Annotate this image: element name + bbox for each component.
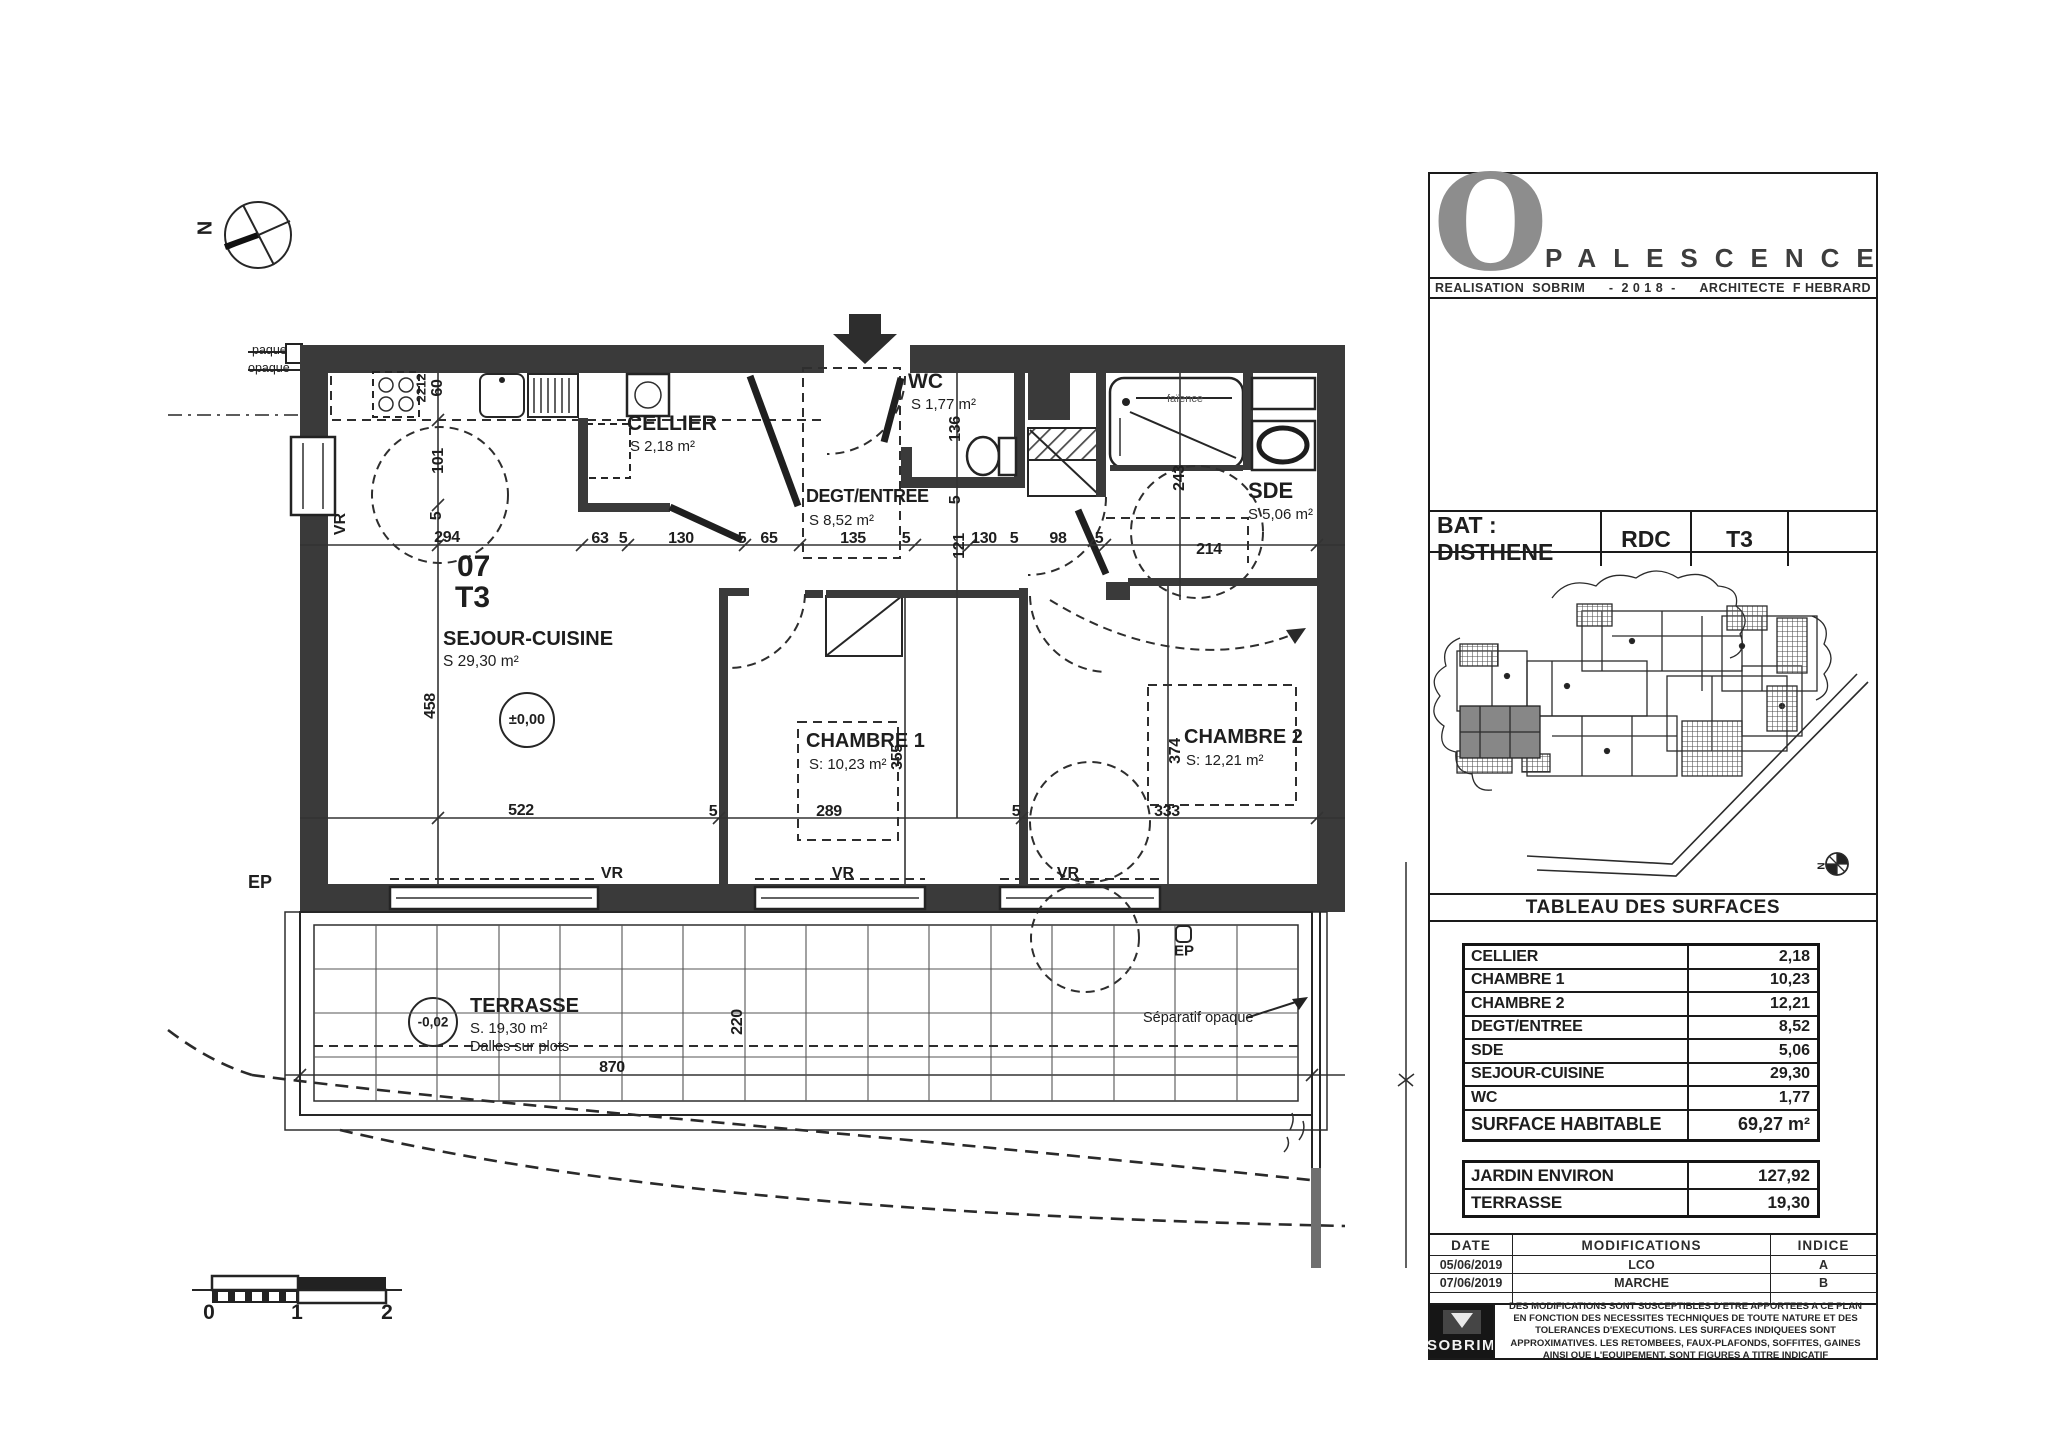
revisions-header-date: DATE [1430,1235,1512,1255]
site-north-label: N [1817,862,1828,869]
scale-1: 1 [291,1301,303,1325]
table-row: TERRASSE 19,30 [1465,1188,1817,1215]
north-label: N [195,221,218,235]
unit-number-label: 07 [457,550,490,584]
entrance-arrow-icon [833,314,897,364]
dim-label: 130 [971,530,997,548]
exterior-room: JARDIN ENVIRON [1465,1163,1687,1188]
dim-label: 5 [1012,803,1021,821]
building-info-row: BAT : DISTHENE RDC T3 [1428,510,1878,553]
room-area-cellier: S 2,18 m² [630,438,695,455]
dim-label: 220 [729,1009,747,1035]
table-row: SDE 5,06 [1465,1038,1817,1062]
surface-room: SDE [1465,1040,1687,1062]
room-area-chambre1: S: 10,23 m² [809,756,887,773]
scanned-floor-plan-page: N paque opaque 07 T3 SEJOUR-CUISINE S 29… [0,0,2048,1448]
revision-date: 05/06/2019 [1430,1255,1512,1273]
dim-label: 458 [422,693,440,719]
revision-indice: A [1770,1255,1876,1273]
dim-label: 374 [1167,738,1185,764]
room-area-chambre2: S: 12,21 m² [1186,752,1264,769]
dim-label: 333 [1154,803,1180,821]
credit-realisation: REALISATION SOBRIM [1435,281,1585,295]
dim-label: 522 [508,802,534,820]
separatif-label: Séparatif opaque [1143,1010,1253,1026]
surface-value: 1,77 [1687,1087,1817,1109]
room-area-terrasse: S. 19,30 m² [470,1020,548,1037]
terrasse-note: Dalles sur plots [470,1039,569,1055]
room-label-chambre1: CHAMBRE 1 [806,730,925,753]
table-row: DEGT/ENTREE 8,52 [1465,1015,1817,1039]
dim-label: 135 [840,530,866,548]
surface-room: CHAMBRE 1 [1465,970,1687,992]
credit-year: - 2 0 1 8 - [1609,281,1676,295]
sobrim-logo: SOBRIM [1430,1305,1493,1358]
window-label-vr: VR [332,513,350,535]
exterior-room: TERRASSE [1465,1190,1687,1215]
room-label-degt: DEGT/ENTREE [806,486,929,507]
dim-label: 5 [428,512,446,521]
room-area-degt: S 8,52 m² [809,512,874,529]
kitchen-fixtures [331,372,822,478]
revisions-table: DATE MODIFICATIONS INDICE 05/06/2019 LCO… [1428,1233,1878,1305]
surface-value: 5,06 [1687,1040,1817,1062]
surface-value: 29,30 [1687,1064,1817,1086]
room-label-cellier: CELLIER [627,412,717,436]
revision-date [1430,1292,1512,1303]
table-row: CHAMBRE 1 10,23 [1465,968,1817,992]
room-label-wc: WC [908,370,943,394]
dim-label: 289 [816,803,842,821]
sobrim-logo-text: SOBRIM [1427,1337,1496,1354]
credits-band: REALISATION SOBRIM - 2 0 1 8 - ARCHITECT… [1428,277,1878,299]
floor-plan-drawing [0,0,1430,1448]
table-row: JARDIN ENVIRON 127,92 [1465,1163,1817,1188]
table-row: WC 1,77 [1465,1085,1817,1109]
exterior-value: 127,92 [1687,1163,1817,1188]
property-boundaries [168,1030,1345,1226]
revisions-header-indice: INDICE [1770,1235,1876,1255]
surface-value: 12,21 [1687,993,1817,1015]
surfaces-table: CELLIER 2,18 CHAMBRE 1 10,23 CHAMBRE 2 1… [1462,943,1820,1142]
exterior-surfaces-table: JARDIN ENVIRON 127,92 TERRASSE 19,30 [1462,1160,1820,1218]
table-row: CHAMBRE 2 12,21 [1465,991,1817,1015]
credit-architecte: ARCHITECTE F HEBRARD [1699,281,1871,295]
level-terrace-label: -0,02 [418,1015,449,1030]
surface-room: CHAMBRE 2 [1465,993,1687,1015]
site-plan-drawing [1432,556,1876,890]
separator-clip-label: paque [252,343,287,357]
room-area-wc: S 1,77 m² [911,396,976,413]
scale-2: 2 [381,1301,393,1325]
north-compass-icon [225,202,291,268]
dim-label: 65 [760,530,777,548]
dim-label: 294 [434,529,460,547]
surface-room: SEJOUR-CUISINE [1465,1064,1687,1086]
ep-label: EP [248,872,272,893]
room-label-sejour: SEJOUR-CUISINE [443,628,613,651]
disclaimer-text: DES MODIFICATIONS SONT SUSCEPTIBLES D'ET… [1493,1305,1876,1358]
dim-label: 5 [738,530,747,548]
dim-label: 63 [591,530,608,548]
site-compass-icon [1826,853,1848,875]
room-label-chambre2: CHAMBRE 2 [1184,726,1303,749]
table-row: CELLIER 2,18 [1465,946,1817,968]
dim-label: 98 [1049,530,1066,548]
revision-modification: MARCHE [1512,1273,1770,1292]
dim-label: 5 [1095,530,1104,548]
scale-bar [192,1276,402,1303]
room-label-terrasse: TERRASSE [470,995,579,1018]
room-label-sde: SDE [1248,478,1293,504]
title-block-footer: SOBRIM DES MODIFICATIONS SONT SUSCEPTIBL… [1428,1303,1878,1360]
ep-label: EP [1174,943,1194,960]
revision-date: 07/06/2019 [1430,1273,1512,1292]
dim-label: 121 [951,533,969,559]
surface-value: 8,52 [1687,1017,1817,1039]
dim-label: 136 [947,416,965,442]
window-label-vr: VR [832,865,854,883]
scale-0: 0 [203,1301,215,1325]
surface-total-row: SURFACE HABITABLE 69,27 m² [1465,1109,1817,1139]
dim-label: 243 [1171,465,1189,491]
surface-value: 2,18 [1687,946,1817,968]
dim-label: 214 [1196,541,1222,559]
revision-indice: B [1770,1273,1876,1292]
dim-label: 101 [430,448,448,474]
dim-label: 2212 [414,374,429,403]
surface-value: 10,23 [1687,970,1817,992]
window-left [291,437,335,515]
window-label-vr: VR [1057,865,1079,883]
dim-label: 5 [1010,530,1019,548]
ep-symbol [1176,926,1191,942]
level-interior-label: ±0,00 [509,712,545,728]
sobrim-emblem-icon [1443,1310,1481,1334]
dim-label: 5 [902,530,911,548]
dim-label: 5 [709,803,718,821]
dim-label: 5 [947,496,965,505]
exterior-value: 19,30 [1687,1190,1817,1215]
room-area-sde: S 5,06 m² [1248,506,1313,523]
faience-label: faïence [1167,393,1203,405]
surfaces-table-title: TABLEAU DES SURFACES [1428,893,1878,922]
dim-label: 130 [668,530,694,548]
duct-shaft [1028,373,1106,497]
revisions-header-modifications: MODIFICATIONS [1512,1235,1770,1255]
surface-total-value: 69,27 m² [1687,1111,1817,1139]
dim-label: 5 [619,530,628,548]
window-label-vr: VR [601,865,623,883]
surface-room: DEGT/ENTREE [1465,1017,1687,1039]
windows-bottom [390,879,1160,909]
table-row: SEJOUR-CUISINE 29,30 [1465,1062,1817,1086]
opalescence-logo-text: PALESCENCE [1545,243,1891,274]
room-area-sejour: S 29,30 m² [443,653,519,671]
surface-room: CELLIER [1465,946,1687,968]
surface-total-label: SURFACE HABITABLE [1465,1111,1687,1139]
revision-modification: LCO [1512,1255,1770,1273]
surface-room: WC [1465,1087,1687,1109]
separatif-opaque [1246,862,1414,1268]
dim-label: 870 [599,1059,625,1077]
opalescence-logo-o: O [1433,158,1548,290]
separator-clip-label: opaque [248,361,290,375]
dim-label: 60 [429,379,447,396]
dim-label: 355 [889,744,907,770]
unit-type-label: T3 [455,581,490,615]
